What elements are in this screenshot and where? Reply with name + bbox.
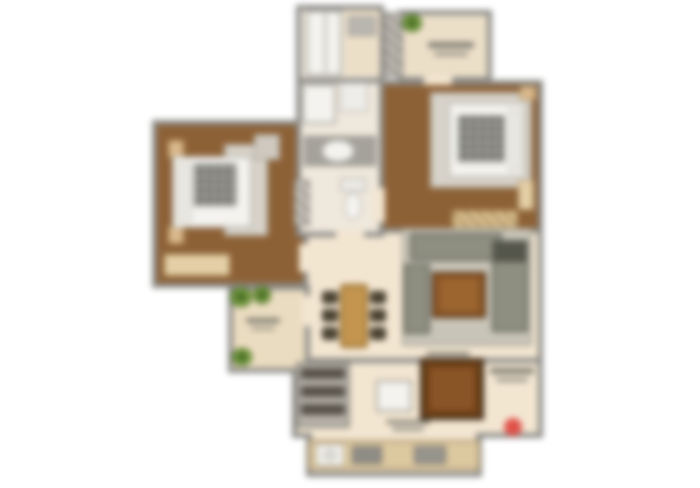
bed-1-pillow bbox=[177, 162, 192, 222]
illegible-room-label bbox=[490, 366, 534, 384]
hob bbox=[352, 446, 382, 464]
plant bbox=[402, 14, 422, 32]
entry-marker bbox=[504, 418, 522, 436]
bed-1-blanket bbox=[194, 164, 236, 206]
sink-bowl bbox=[322, 448, 338, 462]
door-bedroom-1 bbox=[299, 244, 311, 272]
rack-items bbox=[301, 404, 345, 415]
toilet-bowl bbox=[344, 192, 362, 220]
cabinet bbox=[254, 134, 280, 160]
dining-chair bbox=[322, 291, 338, 304]
plant bbox=[230, 287, 252, 307]
counter-unit-top bbox=[430, 368, 474, 410]
wardrobe bbox=[452, 210, 518, 228]
toilet-tank bbox=[340, 178, 366, 192]
sofa-cushion bbox=[494, 242, 526, 262]
illegible-room-label bbox=[246, 316, 280, 332]
door-bedroom-2 bbox=[373, 188, 385, 222]
sofa-left-arm bbox=[404, 264, 430, 334]
door-utility bbox=[424, 76, 452, 85]
bedside-post bbox=[168, 226, 184, 244]
sofa-back bbox=[410, 233, 502, 261]
dining-chair bbox=[370, 291, 386, 304]
wash-basin bbox=[322, 140, 354, 162]
plant bbox=[232, 348, 252, 366]
washbasin-unit bbox=[348, 16, 376, 36]
rack-items bbox=[301, 368, 345, 379]
rack-items bbox=[301, 386, 345, 397]
bath-fixture bbox=[340, 82, 368, 112]
door-balcony bbox=[302, 296, 312, 326]
bed-2-blanket bbox=[458, 116, 504, 162]
dining-chair bbox=[322, 309, 338, 322]
washing-machine bbox=[302, 84, 336, 124]
dining-chair bbox=[322, 327, 338, 340]
illegible-room-label bbox=[428, 40, 474, 58]
duct bbox=[384, 12, 402, 78]
floor-plan bbox=[0, 0, 700, 488]
shower-door bbox=[324, 13, 327, 73]
dining-chair bbox=[370, 309, 386, 322]
dresser bbox=[518, 180, 534, 210]
plant bbox=[253, 286, 271, 304]
illegible-room-label bbox=[386, 418, 430, 432]
door-bathroom bbox=[336, 230, 364, 240]
dresser bbox=[164, 254, 230, 276]
coffee-table-top bbox=[440, 279, 478, 311]
appliance bbox=[414, 446, 446, 464]
dining-table bbox=[340, 284, 368, 348]
kitchen-island bbox=[376, 380, 412, 412]
bed-2-pillow bbox=[508, 108, 523, 172]
dining-chair bbox=[370, 327, 386, 340]
nightstand bbox=[520, 86, 536, 100]
shaft bbox=[294, 180, 310, 226]
